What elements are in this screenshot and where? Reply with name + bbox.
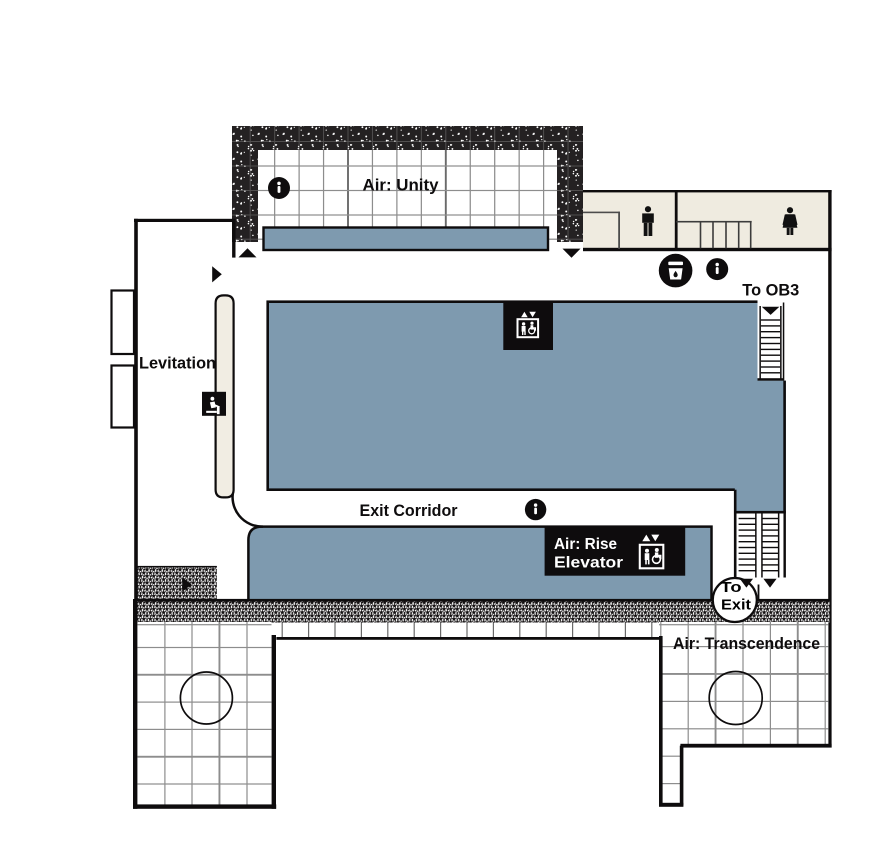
svg-text:To OB3: To OB3 — [742, 282, 799, 300]
svg-text:Levitation: Levitation — [139, 354, 216, 372]
svg-text:Air: Transcendence: Air: Transcendence — [673, 635, 820, 653]
svg-text:Exit: Exit — [721, 597, 751, 614]
svg-text:Air: Unity: Air: Unity — [363, 176, 440, 194]
svg-text:Air: Rise: Air: Rise — [554, 536, 617, 553]
svg-text:Elevator: Elevator — [554, 555, 623, 572]
svg-text:Exit Corridor: Exit Corridor — [360, 502, 459, 520]
svg-text:To: To — [721, 579, 742, 596]
